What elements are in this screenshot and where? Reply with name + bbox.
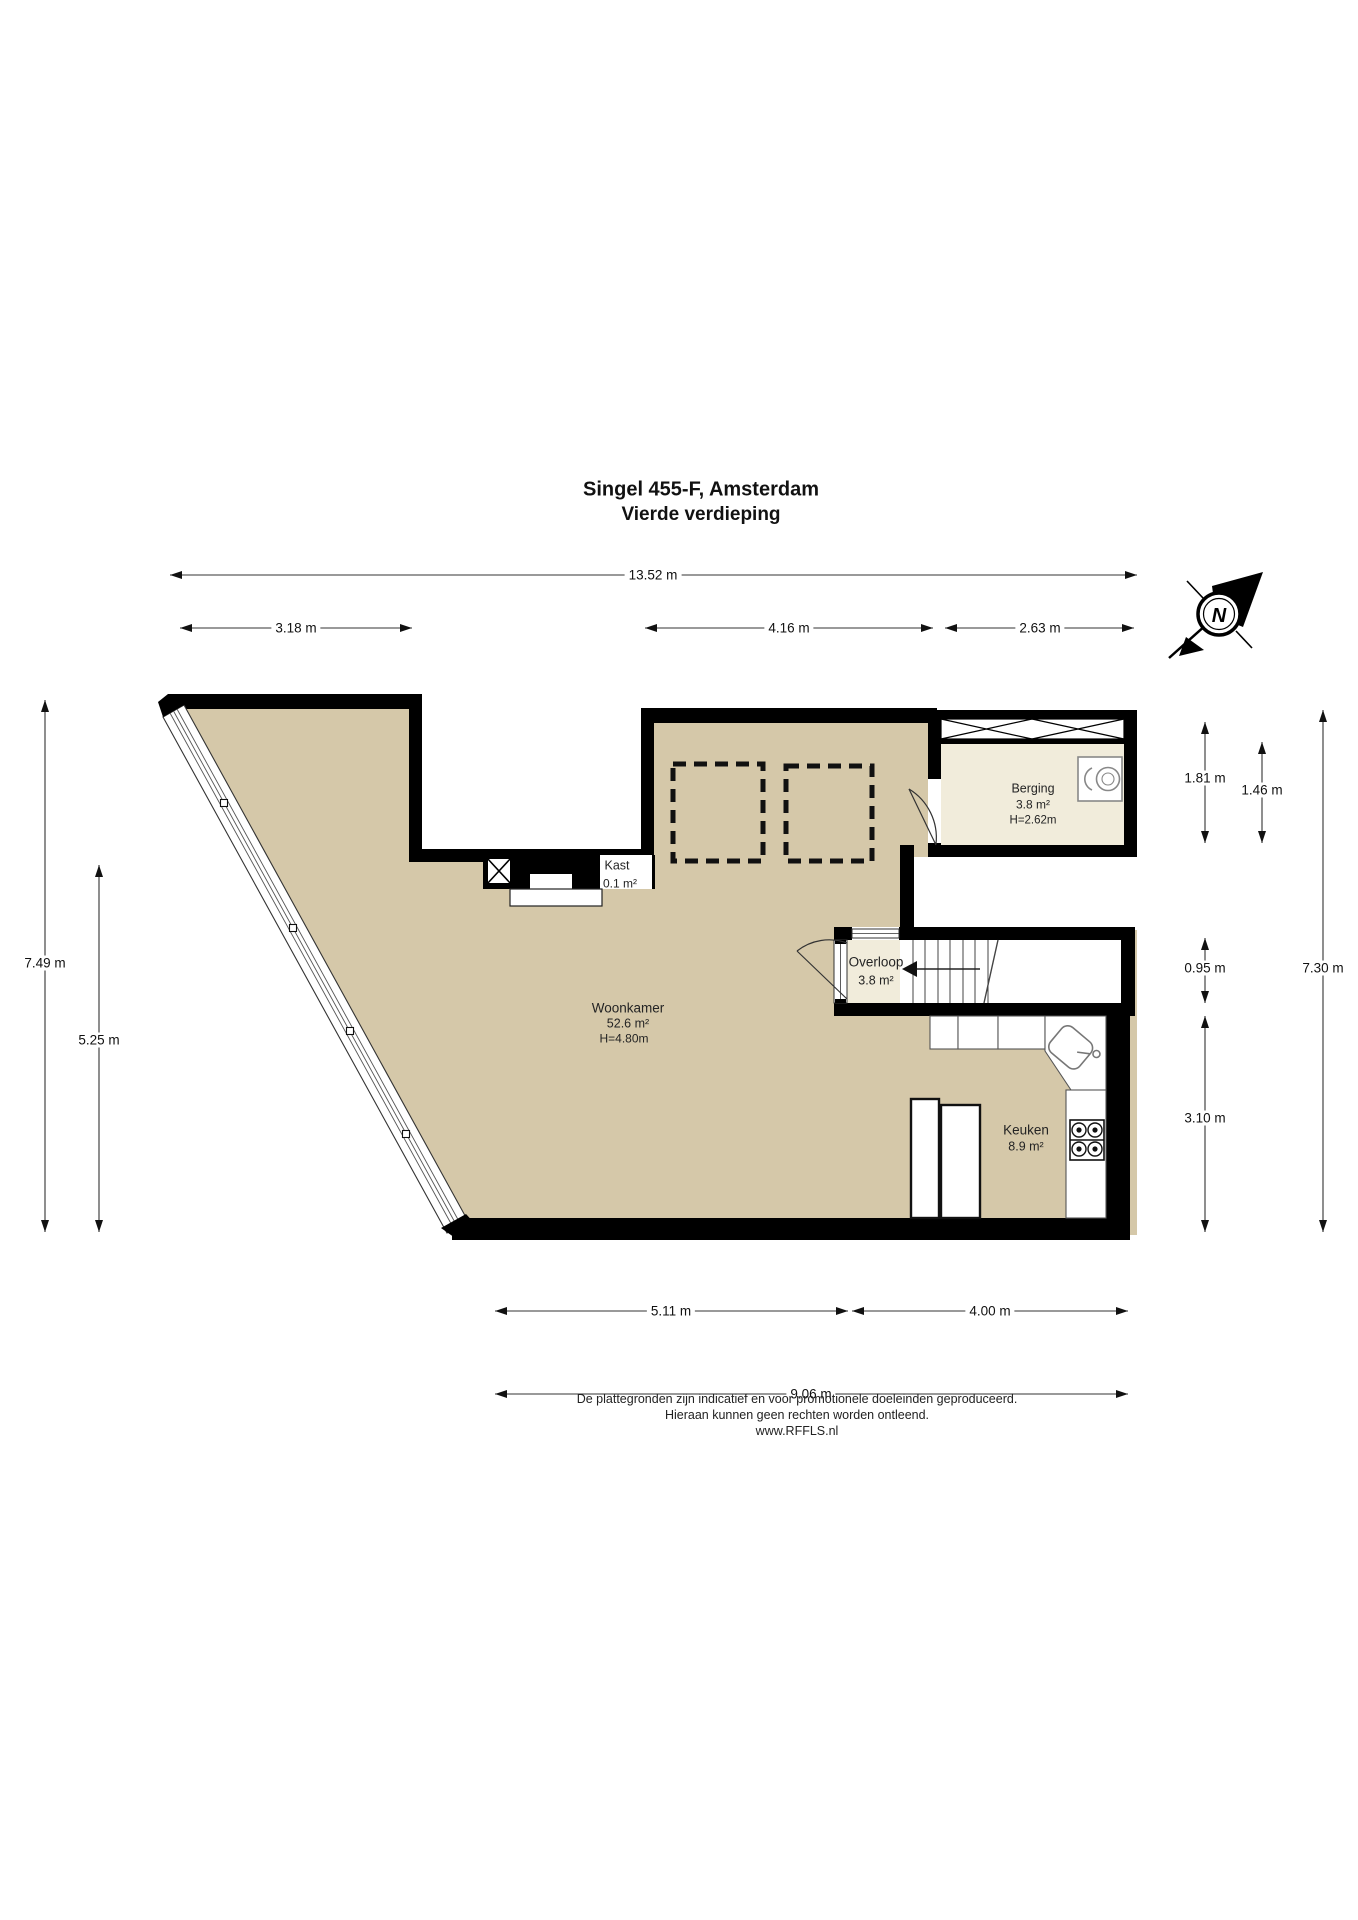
tall-unit-1	[911, 1099, 939, 1218]
wall-east-keuken	[1106, 1016, 1130, 1240]
wall-bottom	[452, 1218, 1130, 1240]
counter-3	[998, 1016, 1045, 1049]
wall-top-right	[641, 708, 937, 723]
tall-unit-2	[941, 1105, 980, 1218]
dim-left-inner: 5.25 m	[74, 1033, 123, 1048]
page-subtitle: Vierde verdieping	[621, 504, 780, 526]
overloop-floor	[847, 940, 900, 1003]
footer-disclaimer-2: Hieraan kunnen geen rechten worden ontle…	[665, 1408, 929, 1422]
room-area-keuken: 8.9 m²	[1008, 1140, 1043, 1155]
berging-hatch-strip	[941, 719, 1124, 739]
counter-2	[958, 1016, 998, 1049]
counter-1	[930, 1016, 958, 1049]
room-label-keuken: Keuken	[1003, 1123, 1049, 1138]
room-area-woonkamer: 52.6 m²	[607, 1017, 649, 1032]
washer-icon	[1078, 757, 1122, 801]
dim-right-overloop: 0.95 m	[1180, 961, 1229, 976]
chimney-breast	[510, 889, 602, 906]
dim-right-berging-inner: 1.46 m	[1237, 783, 1286, 798]
stairs	[900, 940, 1121, 1003]
dim-right-berging-outer: 1.81 m	[1180, 771, 1229, 786]
wall-notch-right	[641, 708, 654, 856]
wall-top-left	[170, 694, 422, 709]
stove-icon	[1070, 1120, 1104, 1160]
floorplan-page: N Singel 455-F, Amsterdam Vierde verdiep…	[0, 0, 1358, 1920]
dim-bottom-left: 5.11 m	[647, 1304, 695, 1319]
dim-bottom-right: 4.00 m	[965, 1304, 1014, 1319]
dim-top-mid: 4.16 m	[764, 621, 813, 636]
dim-top-right: 2.63 m	[1015, 621, 1064, 636]
room-area-kast: 0.1 m²	[603, 877, 637, 892]
page-title: Singel 455-F, Amsterdam	[583, 479, 819, 502]
room-height-berging: H=2.62m	[1010, 814, 1057, 829]
dim-left-outer: 7.49 m	[20, 956, 69, 971]
overloop-stairs-block	[797, 927, 1135, 1016]
dim-right-keuken: 3.10 m	[1180, 1111, 1229, 1126]
north-compass-icon: N	[1169, 572, 1263, 658]
dim-right-total: 7.30 m	[1298, 961, 1347, 976]
footer-disclaimer-1: De plattegronden zijn indicatief en voor…	[577, 1392, 1018, 1406]
room-label-overloop: Overloop	[849, 955, 904, 970]
room-height-woonkamer: H=4.80m	[599, 1032, 648, 1047]
wall-under-berging	[900, 845, 914, 941]
dim-top-left: 3.18 m	[271, 621, 320, 636]
wall-notch-left	[409, 694, 422, 862]
compass-north-label: N	[1212, 605, 1227, 627]
overloop-window-top	[852, 929, 899, 938]
floor-plan-svg: N	[0, 0, 1358, 1920]
room-label-berging: Berging	[1011, 782, 1054, 797]
room-label-woonkamer: Woonkamer	[592, 1001, 665, 1016]
room-area-overloop: 3.8 m²	[858, 974, 893, 989]
room-label-kast: Kast	[604, 859, 629, 874]
room-area-berging: 3.8 m²	[1016, 798, 1050, 813]
dim-top-total: 13.52 m	[625, 568, 682, 583]
footer-website: www.RFFLS.nl	[756, 1424, 839, 1438]
